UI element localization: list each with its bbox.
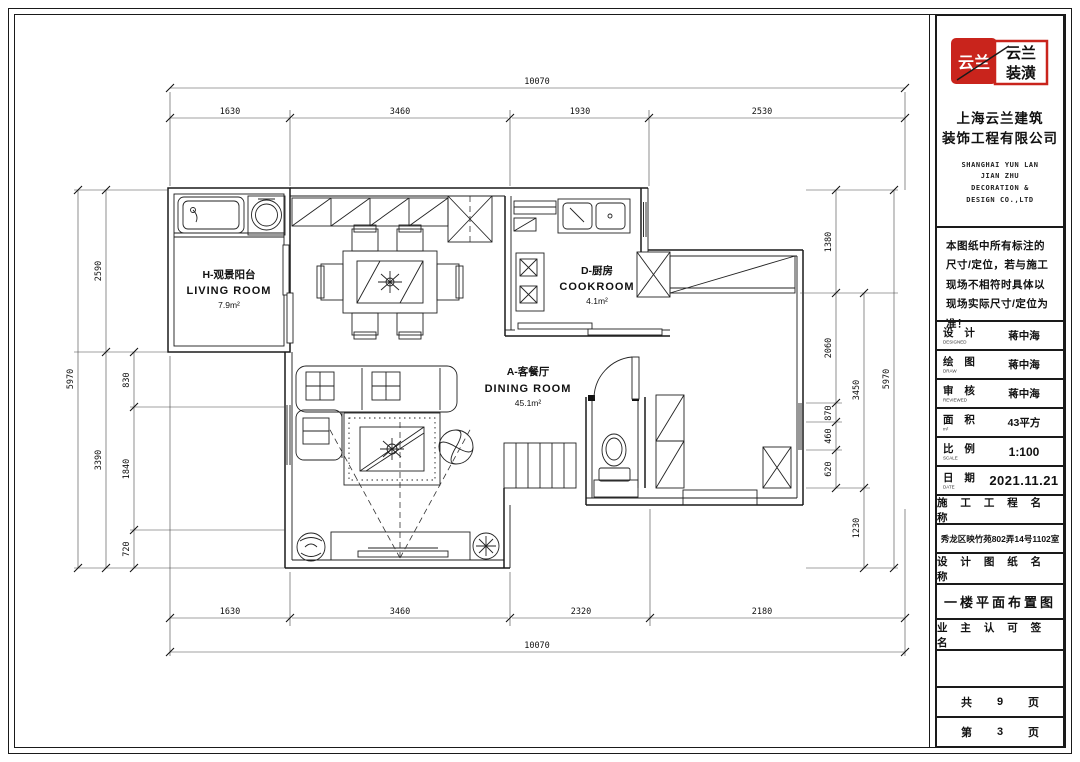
field-value: 43平方 (985, 409, 1063, 436)
svg-text:2530: 2530 (752, 107, 772, 117)
title-block: 云兰 云兰 装潢 上海云兰建筑 装饰工程有限公司 SHANGHAI YUN LA… (929, 14, 1065, 748)
room-label-kitchen-cn: D-厨房 (581, 264, 613, 277)
field-label: 日 期 (943, 470, 985, 485)
svg-text:1840: 1840 (122, 459, 132, 479)
svg-text:1380: 1380 (824, 232, 834, 252)
current-page-suffix: 页 (1028, 724, 1039, 740)
dim-right: 1380 2060 870 460 620 3450 1230 5970 (800, 186, 898, 572)
sofa-pillows (303, 372, 400, 444)
svg-text:10070: 10070 (524, 77, 550, 87)
field-sublabel: DESIGNED (943, 340, 981, 345)
field-label: 面 积 (943, 412, 985, 427)
room-label-kitchen-en: COOKROOM (559, 281, 634, 293)
svg-text:10070: 10070 (524, 641, 550, 651)
svg-text:3460: 3460 (390, 607, 410, 617)
company-logo: 云兰 云兰 装潢 (949, 32, 1051, 88)
rug (344, 413, 440, 485)
field-row-scale: 比 例SCALE 1:100 (937, 436, 1063, 465)
field-label: 绘 图 (943, 354, 985, 369)
svg-text:1930: 1930 (570, 107, 590, 117)
field-value: 2021.11.21 (985, 467, 1063, 494)
fan-plant (439, 430, 473, 464)
logo-brand-line2: 装潢 (1005, 64, 1036, 82)
drawing-name-header: 设 计 图 纸 名 称 (937, 552, 1063, 583)
svg-text:460: 460 (824, 428, 834, 443)
toilet-fixture (594, 434, 638, 497)
field-value: 蒋中海 (985, 351, 1063, 378)
svg-text:5970: 5970 (66, 369, 76, 389)
field-label: 审 核 (943, 383, 985, 398)
field-value: 蒋中海 (985, 322, 1063, 349)
dim-top: 10070 1630 3460 1930 2530 (166, 77, 909, 190)
toilet-walls (586, 395, 645, 505)
svg-text:2320: 2320 (571, 607, 591, 617)
field-row-date: 日 期DATE 2021.11.21 (937, 465, 1063, 494)
svg-text:2060: 2060 (824, 338, 834, 358)
wardrobe-x-cell (448, 196, 492, 242)
toilet-door (594, 357, 639, 399)
company-section: 云兰 云兰 装潢 上海云兰建筑 装饰工程有限公司 SHANGHAI YUN LA… (937, 16, 1063, 226)
field-row-drawn: 绘 图DRAW 蒋中海 (937, 349, 1063, 378)
field-sublabel: DATE (943, 485, 981, 490)
total-pages-prefix: 共 (961, 694, 972, 710)
dimension-notice: 本图纸中所有标注的尺寸/定位，若与施工现场不相符时具体以现场实际尺寸/定位为准！ (937, 226, 1063, 320)
svg-text:620: 620 (824, 461, 834, 476)
corner-x-box (763, 447, 791, 488)
floor-plan: H-观景阳台 LIVING ROOM 7.9m² D-厨房 COOKROOM 4… (14, 13, 926, 750)
room-label-balcony-en: LIVING ROOM (187, 285, 272, 297)
field-row-area: 面 积m² 43平方 (937, 407, 1063, 436)
svg-text:1230: 1230 (852, 518, 862, 538)
logo-brand-line1: 云兰 (1006, 44, 1036, 62)
field-row-designed: 设 计DESIGNED 蒋中海 (937, 320, 1063, 349)
company-name-en: SHANGHAI YUN LAN JIAN ZHU DECORATION & D… (937, 160, 1063, 208)
dining-table (343, 251, 437, 313)
table-plant (378, 271, 402, 293)
field-sublabel: SCALE (943, 456, 981, 461)
main-top-wall (290, 188, 648, 196)
total-pages-suffix: 页 (1028, 694, 1039, 710)
field-row-reviewed: 审 核REVIEWED 蒋中海 (937, 378, 1063, 407)
room-label-dining-en: DINING ROOM (485, 383, 572, 395)
svg-text:5970: 5970 (882, 369, 892, 389)
field-value: 1:100 (985, 438, 1063, 465)
room-label-kitchen-area: 4.1m² (586, 296, 608, 306)
washing-machine (248, 196, 285, 235)
current-page-number: 3 (997, 726, 1003, 738)
room-label-balcony-cn: H-观景阳台 (202, 268, 255, 281)
project-address: 秀龙区映竹苑802弄14号1102室 (937, 523, 1063, 552)
main-bottom-wall (285, 488, 510, 568)
tall-cabinet (656, 395, 684, 488)
corner-plant-right (473, 533, 499, 559)
field-label: 比 例 (943, 441, 985, 456)
current-page-row: 第 3 页 (937, 716, 1063, 746)
field-label: 设 计 (943, 325, 985, 340)
company-name-cn: 上海云兰建筑 装饰工程有限公司 (937, 109, 1063, 150)
main-left-wall (285, 352, 292, 568)
owner-signature-space (937, 649, 1063, 686)
svg-text:870: 870 (824, 405, 834, 420)
kitchen-shelf (514, 201, 556, 231)
project-name-header: 施 工 工 程 名 称 (937, 494, 1063, 523)
room-label-dining-cn: A-客餐厅 (507, 365, 550, 378)
svg-text:1630: 1630 (220, 107, 240, 117)
field-value: 蒋中海 (985, 380, 1063, 407)
kitchen-walls (505, 188, 670, 336)
svg-text:2590: 2590 (94, 261, 104, 281)
kitchen-sink (558, 199, 630, 233)
top-cabinet-row (292, 198, 448, 226)
stairs (504, 443, 576, 488)
total-pages-number: 9 (997, 696, 1003, 708)
room-label-balcony-area: 7.9m² (218, 300, 240, 310)
svg-text:1630: 1630 (220, 607, 240, 617)
corner-plant-left (297, 533, 325, 561)
field-sublabel: m² (943, 427, 981, 432)
dim-left: 5970 2590 3390 830 1840 720 (66, 186, 285, 572)
column-x-box (637, 252, 670, 297)
room-label-dining-area: 45.1m² (515, 398, 542, 408)
svg-text:720: 720 (122, 541, 132, 556)
svg-text:3450: 3450 (852, 380, 862, 400)
field-sublabel: REVIEWED (943, 398, 981, 403)
drawing-sheet: H-观景阳台 LIVING ROOM 7.9m² D-厨房 COOKROOM 4… (0, 0, 1080, 762)
field-sublabel: DRAW (943, 369, 981, 374)
balcony-sliding-door (283, 245, 293, 343)
stove (516, 253, 544, 311)
drawing-name-value: 一楼平面布置图 (937, 583, 1063, 618)
long-cabinet (670, 256, 795, 293)
svg-text:3390: 3390 (94, 450, 104, 470)
svg-text:830: 830 (122, 372, 132, 387)
owner-signature-header: 业 主 认 可 签 名 (937, 618, 1063, 649)
projection-lines (329, 420, 471, 558)
bathtub (178, 197, 244, 233)
svg-text:3460: 3460 (390, 107, 410, 117)
total-pages-row: 共 9 页 (937, 686, 1063, 716)
svg-text:2180: 2180 (752, 607, 772, 617)
tv-console (331, 532, 470, 560)
current-page-prefix: 第 (961, 724, 972, 740)
